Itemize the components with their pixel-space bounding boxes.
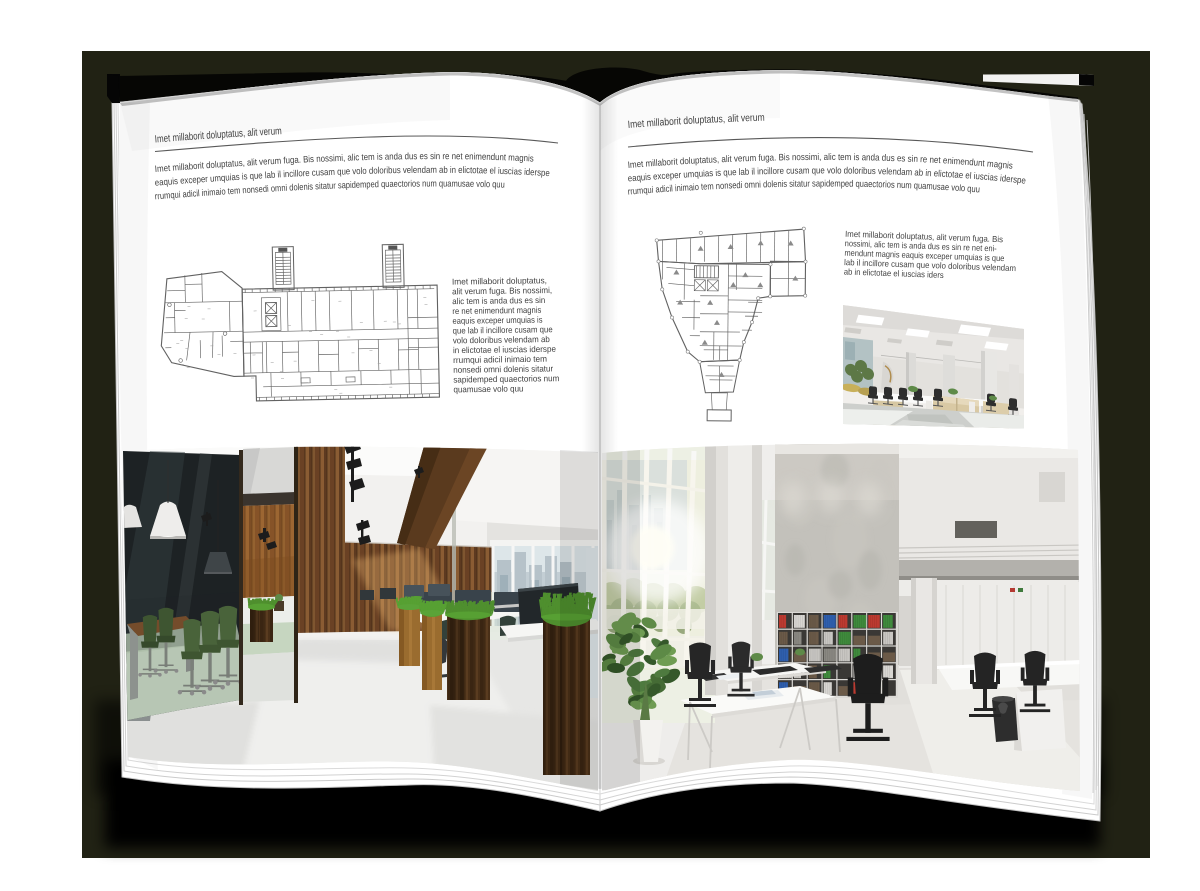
svg-text:quamusae volo quu: quamusae volo quu	[453, 383, 523, 394]
